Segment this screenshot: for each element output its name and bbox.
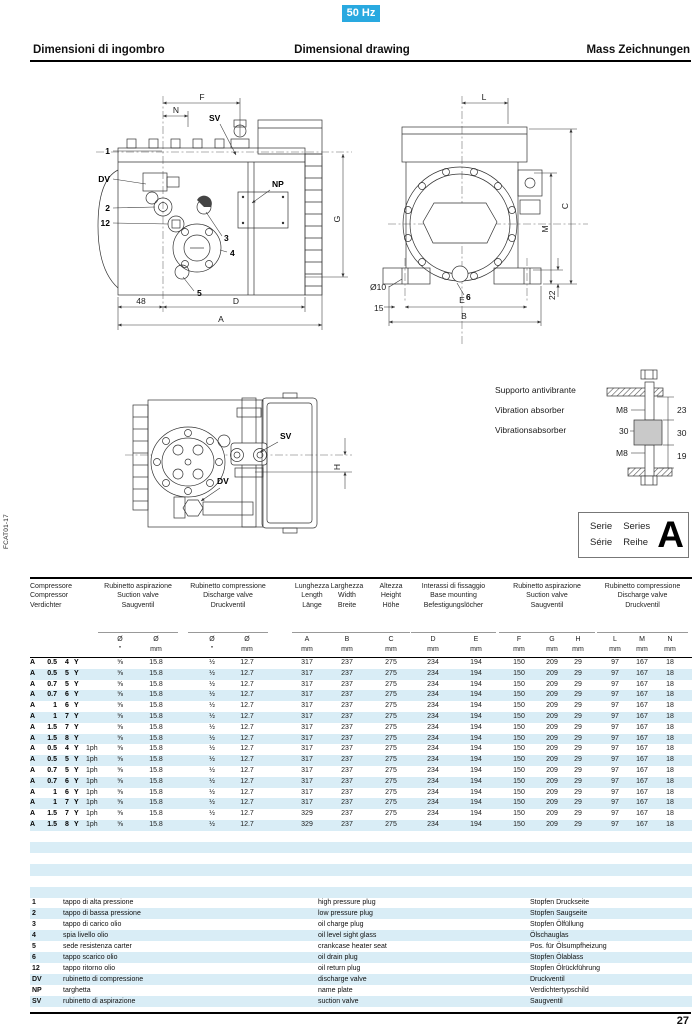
column-group-header: Interassi di fissaggioBase mountingBefes… <box>411 582 496 610</box>
end-dim-c: C <box>560 203 570 209</box>
absorber-dim-23: 23 <box>677 405 687 415</box>
column-subheader: Ø" <box>103 635 137 654</box>
front-label-5: 5 <box>197 288 202 298</box>
absorber-m8-bottom: M8 <box>616 448 628 458</box>
table-row: A0.55Y⅝15.8½12.7317237275234194150209299… <box>30 669 692 680</box>
legend-row: 12tappo ritorno oliooil return plugStopf… <box>30 963 692 974</box>
dimensions-table: CompressoreCompressorVerdichterRubinetto… <box>30 577 692 898</box>
empty-stripe-row <box>30 853 692 864</box>
empty-stripe-row <box>30 842 692 853</box>
absorber-m8-top: M8 <box>616 405 628 415</box>
header-rule <box>30 60 691 62</box>
page-title-italian: Dimensioni di ingombro <box>33 44 165 56</box>
table-row: A0.54Y⅝15.8½12.7317237275234194150209299… <box>30 658 692 669</box>
column-subheader: Ømm <box>230 635 264 654</box>
absorber-dim-30: 30 <box>677 428 687 438</box>
legend-row: 1tappo di alta pressionehigh pressure pl… <box>30 897 692 908</box>
front-label-np: NP <box>272 179 284 189</box>
table-row: A16Y1ph⅝15.8½12.731723727523419415020929… <box>30 788 692 799</box>
column-subheader: Ø" <box>195 635 229 654</box>
legend-row: 6tappo scarico oliooil drain plugStopfen… <box>30 952 692 963</box>
table-row: A17Y⅝15.8½12.731723727523419415020929971… <box>30 712 692 723</box>
top-dim-h: H <box>332 464 342 470</box>
end-dim-m: M <box>540 225 550 232</box>
group-underline <box>411 632 496 633</box>
vibration-absorber-drawing: M8 30 M8 23 30 19 <box>607 370 687 485</box>
column-subheader: Amm <box>290 635 324 654</box>
series-letter: A <box>657 515 684 555</box>
top-label-sv: SV <box>280 431 292 441</box>
front-label-dv: DV <box>98 174 110 184</box>
legend-row: NPtarghettaname plateVerdichtertypschild <box>30 985 692 996</box>
group-underline <box>499 632 595 633</box>
frequency-badge: 50 Hz <box>342 5 380 22</box>
column-subheader: Hmm <box>561 635 595 654</box>
group-underline <box>98 632 178 633</box>
column-subheader: Cmm <box>374 635 408 654</box>
front-view-drawing: F N SV 1 DV 2 12 NP 3 4 5 48 D A G <box>96 92 352 330</box>
page-number: 27 <box>677 1015 689 1027</box>
page-title-english: Dimensional drawing <box>294 44 410 56</box>
series-labels-col1: Serie Série <box>590 519 612 551</box>
front-dim-a: A <box>218 314 224 324</box>
absorber-caption-italian: Supporto antivibrante <box>495 385 576 395</box>
series-box: Serie Série Series Reihe A <box>578 512 689 558</box>
front-label-12: 12 <box>101 218 111 228</box>
end-label-6: 6 <box>466 292 471 302</box>
table-row: A0.75Y⅝15.8½12.7317237275234194150209299… <box>30 680 692 691</box>
group-underline <box>597 632 688 633</box>
catalog-code: FCAT01-17 <box>3 489 10 549</box>
table-body: A0.54Y⅝15.8½12.7317237275234194150209299… <box>30 658 692 898</box>
absorber-caption-english: Vibration absorber <box>495 405 564 415</box>
column-group-header: AltezzaHeightHöhe <box>369 582 413 610</box>
table-row: A0.76Y1ph⅝15.8½12.7317237275234194150209… <box>30 777 692 788</box>
front-dim-48: 48 <box>136 296 146 306</box>
column-subheader: Emm <box>459 635 493 654</box>
end-dim-22: 22 <box>547 290 557 300</box>
end-dim-dia10: Ø10 <box>370 282 386 292</box>
absorber-caption-german: Vibrationsabsorber <box>495 425 566 435</box>
table-row: A0.75Y1ph⅝15.8½12.7317237275234194150209… <box>30 766 692 777</box>
front-label-2: 2 <box>105 203 110 213</box>
empty-stripe-row <box>30 864 692 875</box>
front-dim-f: F <box>199 92 204 102</box>
table-row: A0.54Y1ph⅝15.8½12.7317237275234194150209… <box>30 744 692 755</box>
column-subheader: Fmm <box>502 635 536 654</box>
front-dim-n: N <box>173 105 179 115</box>
table-row: A1.58Y1ph⅝15.8½12.7329237275234194150209… <box>30 820 692 831</box>
column-subheader: Nmm <box>653 635 687 654</box>
technical-drawings: F N SV 1 DV 2 12 NP 3 4 5 48 D A G <box>0 70 692 575</box>
column-subheader: Bmm <box>330 635 364 654</box>
column-group-header: Rubinetto compressioneDischarge valveDru… <box>597 582 688 610</box>
absorber-30-left: 30 <box>619 426 629 436</box>
table-row: A16Y⅝15.8½12.731723727523419415020929971… <box>30 701 692 712</box>
table-row: A0.76Y⅝15.8½12.7317237275234194150209299… <box>30 690 692 701</box>
end-dim-15: 15 <box>374 303 384 313</box>
footer-rule <box>30 1012 691 1014</box>
empty-stripe-row <box>30 876 692 887</box>
column-group-header: LarghezzaWidthBreite <box>325 582 369 610</box>
group-underline <box>292 632 410 633</box>
table-row: A1.57Y⅝15.8½12.7317237275234194150209299… <box>30 723 692 734</box>
front-dim-d: D <box>233 296 239 306</box>
end-dim-e: E <box>459 295 465 305</box>
series-labels-col2: Series Reihe <box>623 519 650 551</box>
table-row: A0.55Y1ph⅝15.8½12.7317237275234194150209… <box>30 755 692 766</box>
column-group-header: Rubinetto aspirazioneSuction valveSaugve… <box>499 582 595 610</box>
legend-row: 4spia livello oliooil level sight glassÖ… <box>30 930 692 941</box>
empty-stripe-row <box>30 831 692 842</box>
table-row: A1.57Y1ph⅝15.8½12.7329237275234194150209… <box>30 809 692 820</box>
page-title-german: Mass Zeichnungen <box>586 44 690 56</box>
front-label-3: 3 <box>224 233 229 243</box>
legend-row: 2tappo di bassa pressionelow pressure pl… <box>30 908 692 919</box>
column-group-header: Rubinetto aspirazioneSuction valveSaugve… <box>98 582 178 610</box>
column-subheader: Dmm <box>416 635 450 654</box>
front-label-1: 1 <box>105 146 110 156</box>
group-underline <box>188 632 268 633</box>
absorber-dim-19: 19 <box>677 451 687 461</box>
legend-row: DVrubinetto di compressionedischarge val… <box>30 974 692 985</box>
parts-legend: 1tappo di alta pressionehigh pressure pl… <box>30 897 692 1007</box>
front-dim-g: G <box>332 216 342 223</box>
end-view-drawing: L C M 22 Ø10 15 6 E B <box>370 92 588 346</box>
top-view-drawing: SV DV H <box>125 393 352 533</box>
column-group-header: Rubinetto compressioneDischarge valveDru… <box>188 582 268 610</box>
legend-row: SVrubinetto di aspirazionesuction valveS… <box>30 996 692 1007</box>
end-dim-b: B <box>461 311 467 321</box>
column-subheader: Ømm <box>139 635 173 654</box>
top-label-dv: DV <box>217 476 229 486</box>
legend-row: 5sede resistenza cartercrankcase heater … <box>30 941 692 952</box>
front-label-4: 4 <box>230 248 235 258</box>
front-label-sv: SV <box>209 113 221 123</box>
end-dim-l: L <box>482 92 487 102</box>
legend-row: 3tappo di carico oliooil charge plugStop… <box>30 919 692 930</box>
table-row: A1.58Y⅝15.8½12.7317237275234194150209299… <box>30 734 692 745</box>
table-header: CompressoreCompressorVerdichterRubinetto… <box>30 577 692 658</box>
table-row: A17Y1ph⅝15.8½12.731723727523419415020929… <box>30 798 692 809</box>
